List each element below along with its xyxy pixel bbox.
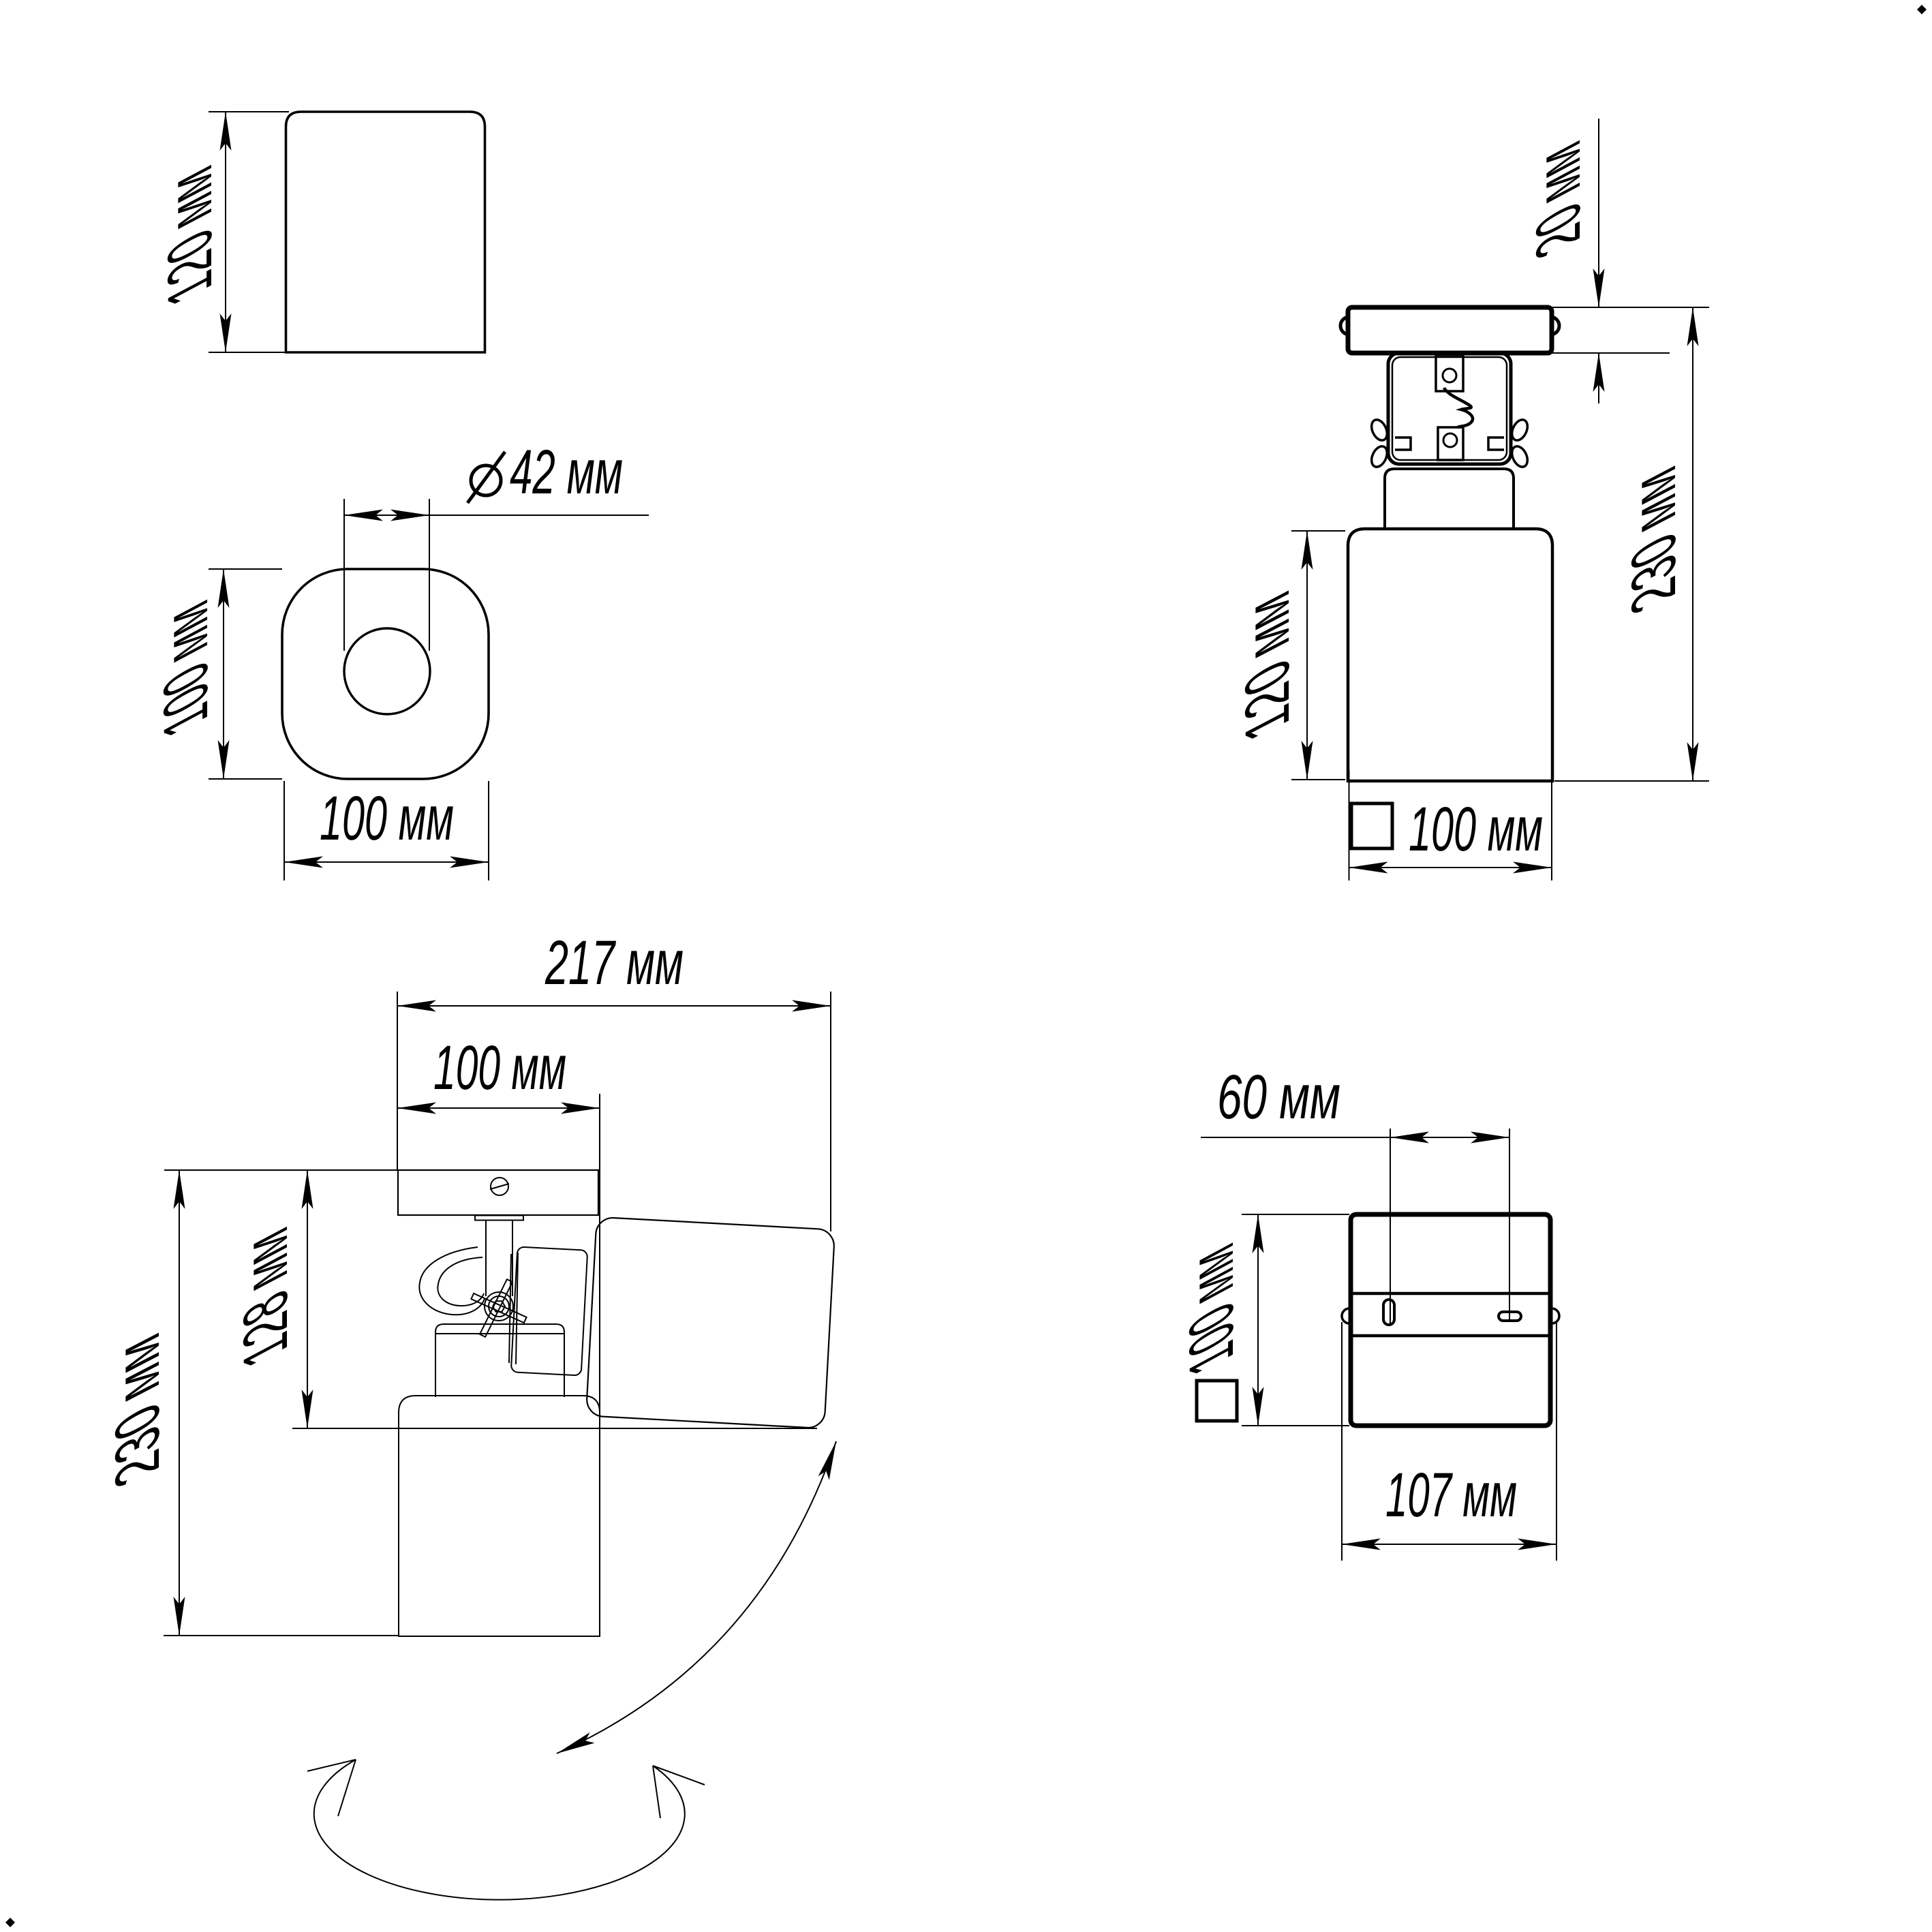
svg-text:100 мм: 100 мм — [433, 1033, 566, 1103]
svg-text:60 мм: 60 мм — [1217, 1062, 1340, 1132]
svg-text:217 мм: 217 мм — [545, 928, 684, 998]
svg-text:100 мм: 100 мм — [1409, 795, 1543, 864]
svg-text:100 мм: 100 мм — [320, 784, 454, 853]
svg-text:42 мм: 42 мм — [510, 438, 623, 507]
svg-text:107 мм: 107 мм — [1385, 1460, 1517, 1530]
